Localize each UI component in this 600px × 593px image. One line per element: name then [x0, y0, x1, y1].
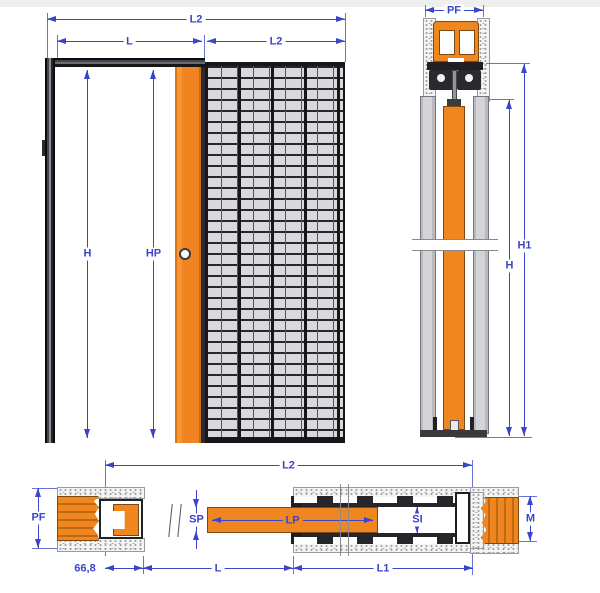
dim-section-opening-height: H [509, 100, 510, 436]
timber-post-section [481, 497, 519, 544]
track-carriage [457, 70, 481, 90]
arrowhead-icon [506, 100, 512, 109]
dim-plan-jamb-offset: 66,8 [105, 568, 143, 569]
arrowhead-icon [105, 565, 114, 571]
dim-plan-panel-thickness: SP [196, 490, 197, 549]
arrowhead-icon [464, 565, 473, 571]
left-jamb [45, 58, 55, 443]
dim-label: 66,8 [71, 562, 98, 575]
dim-plan-frame-depth: PF [38, 488, 39, 548]
arrowhead-icon [364, 517, 373, 523]
pocket-mesh-frame [205, 62, 345, 443]
floor-bracket [470, 417, 474, 431]
header-beam-section [433, 21, 479, 62]
dim-plan-pocket-interior: SI [417, 507, 418, 533]
dim-front-opening-height: H [87, 70, 88, 438]
arrowhead-icon [193, 38, 202, 44]
extension-line [345, 13, 346, 62]
dim-label: LP [282, 514, 302, 527]
arrowhead-icon [336, 16, 345, 22]
jamb-hinge-detail [42, 140, 45, 156]
roller-wheel-icon [465, 74, 473, 82]
dim-plan-overall-width: L2 [105, 465, 472, 466]
arrowhead-icon [150, 429, 156, 438]
arrowhead-icon [35, 488, 41, 497]
break-band [412, 239, 498, 251]
dim-label: M [523, 512, 538, 525]
dim-label: H1 [514, 240, 534, 253]
arrowhead-icon [84, 429, 90, 438]
break-line [348, 484, 349, 556]
dim-front-pocket-width: L2 [207, 41, 345, 42]
entrance-guide [291, 496, 302, 507]
arrowhead-icon [207, 38, 216, 44]
arrowhead-icon [284, 565, 293, 571]
pocket-wall-stipple [293, 544, 475, 553]
pocket-wall-profile [293, 496, 473, 507]
dim-plan-post-depth: M [530, 496, 531, 541]
dim-label: PF [444, 4, 464, 17]
arrowhead-icon [134, 565, 143, 571]
dim-label: L2 [279, 459, 298, 472]
arrowhead-icon [193, 531, 199, 540]
break-mark [168, 504, 172, 537]
dim-label: PF [28, 512, 48, 525]
dim-label: L1 [374, 562, 393, 575]
arrowhead-icon [474, 7, 483, 13]
extension-line [519, 541, 537, 542]
dim-label: L2 [267, 35, 286, 48]
extension-line [483, 5, 484, 17]
dim-front-overall-width: L2 [47, 19, 345, 20]
break-line [340, 484, 341, 556]
arrowhead-icon [293, 565, 302, 571]
dim-section-overall-height: H1 [524, 64, 525, 436]
track-carriage [429, 70, 453, 90]
arrowhead-icon [47, 16, 56, 22]
break-mark [177, 504, 181, 537]
timber-jamb-section [57, 496, 99, 541]
arrowhead-icon [506, 427, 512, 436]
jamb-profile [99, 499, 143, 539]
dim-label: L [123, 35, 136, 48]
dim-label: SI [409, 514, 425, 527]
wall-stipple [470, 492, 484, 549]
arrowhead-icon [336, 38, 345, 44]
arrowhead-icon [527, 532, 533, 541]
floor-bracket [433, 417, 437, 431]
header-track [45, 58, 205, 67]
dim-label: HP [143, 248, 164, 261]
arrowhead-icon [57, 38, 66, 44]
arrowhead-icon [527, 496, 533, 505]
dim-label: H [503, 260, 517, 273]
roller-wheel-icon [437, 74, 445, 82]
dim-label: H [81, 248, 95, 261]
entrance-guide [291, 533, 302, 544]
pocket-wall-profile [293, 533, 473, 544]
dim-label: SP [186, 513, 207, 526]
arrowhead-icon [143, 565, 152, 571]
dim-label: L [212, 562, 225, 575]
arrowhead-icon [193, 499, 199, 508]
pocket-end-profile [455, 492, 470, 544]
arrowhead-icon [105, 462, 114, 468]
pocket-door-technical-drawing: L2 L L2 H [0, 0, 600, 593]
beam-hole [459, 30, 475, 55]
dim-plan-pocket-length: L1 [293, 568, 473, 569]
plasterboard-panel [473, 96, 489, 434]
jamb-profile-insert [113, 504, 139, 536]
dim-section-frame-depth: PF [425, 10, 483, 11]
arrowhead-icon [425, 7, 434, 13]
beam-hole [439, 30, 455, 55]
arrowhead-icon [521, 427, 527, 436]
dim-plan-passage-width: L [143, 568, 293, 569]
extension-line [455, 437, 532, 438]
floor-line [420, 430, 487, 437]
track-rail [427, 62, 483, 70]
top-band [0, 0, 600, 7]
arrowhead-icon [150, 70, 156, 79]
arrowhead-icon [84, 70, 90, 79]
dim-front-passage-width: L [57, 41, 202, 42]
knob-hole-icon [179, 248, 191, 260]
plasterboard-panel [420, 96, 436, 434]
arrowhead-icon [35, 539, 41, 548]
dim-front-panel-height: HP [153, 70, 154, 438]
door-panel-section [443, 106, 465, 430]
dim-label: L2 [187, 13, 206, 26]
arrowhead-icon [463, 462, 472, 468]
arrowhead-icon [212, 517, 221, 523]
arrowhead-icon [521, 64, 527, 73]
